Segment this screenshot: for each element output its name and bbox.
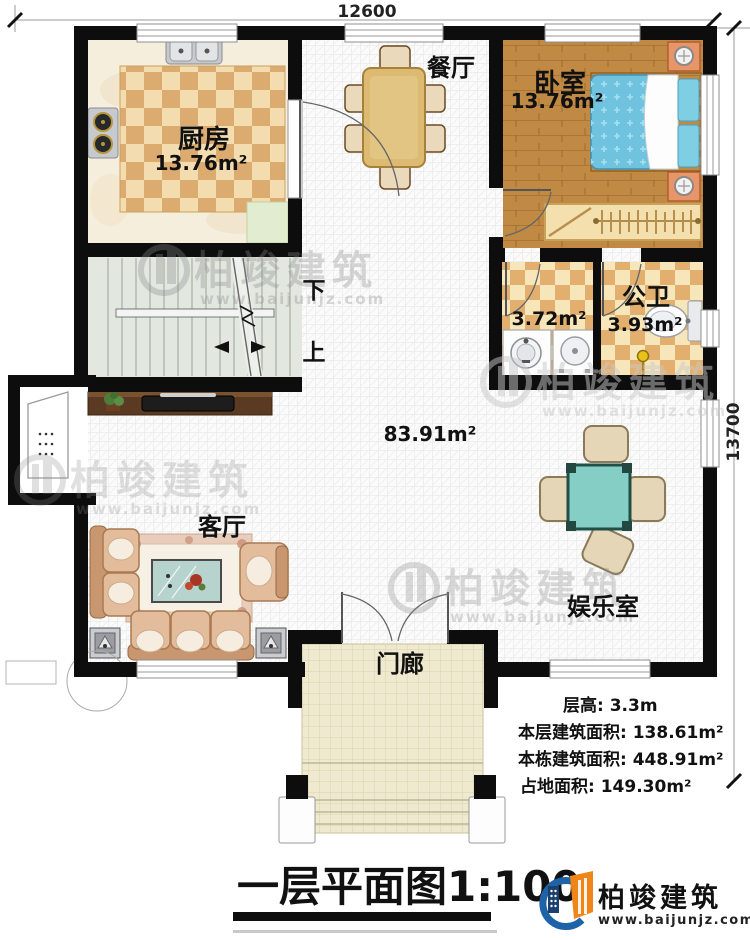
- floor-speaker: [256, 628, 286, 658]
- bed-pillow: [678, 79, 699, 121]
- info-footprint-area: 占地面积: 149.30m²: [520, 776, 691, 797]
- title-text: 一层平面图: [237, 862, 447, 911]
- brand-name: 柏竣建筑: [598, 882, 722, 914]
- svg-text:www.baijunjz.com: www.baijunjz.com: [542, 402, 727, 420]
- public-bath-label: 公卫: [622, 283, 670, 311]
- kitchen-area: 13.76m²: [155, 151, 248, 175]
- window: [137, 24, 237, 42]
- stair-down-label: 下: [303, 278, 326, 304]
- bedroom-area: 13.76m²: [511, 89, 604, 113]
- svg-text:柏竣建筑: 柏竣建筑: [194, 248, 378, 294]
- mahjong-table: [568, 465, 630, 529]
- game-chair: [627, 477, 665, 521]
- living-label: 客厅: [198, 513, 246, 541]
- bed-pillow: [678, 125, 699, 167]
- outdoor-pad: [6, 661, 56, 684]
- floor-plan-canvas: 12600 13700: [0, 0, 750, 940]
- svg-text:柏竣建筑: 柏竣建筑: [70, 458, 254, 504]
- bath-area: 3.72m²: [512, 308, 587, 330]
- sofa-left: [90, 526, 139, 618]
- title-underline-thin: [233, 930, 497, 933]
- window: [345, 24, 443, 42]
- info-floor-built-area: 本层建筑面积: 138.61m²: [518, 722, 723, 743]
- window: [701, 75, 719, 175]
- hall-area: 83.91m²: [384, 422, 477, 446]
- info-block: 层高: 3.3m 本层建筑面积: 138.61m² 本栋建筑面积: 448.91…: [518, 695, 723, 797]
- wardrobe: [545, 204, 701, 240]
- dimension-width: 12600: [337, 2, 396, 22]
- stair-up-label: 上: [303, 340, 326, 366]
- armchair-right: [240, 543, 288, 601]
- dining-label: 餐厅: [427, 54, 475, 82]
- living-room-set: [90, 526, 288, 660]
- public-bath-area: 3.93m²: [608, 314, 683, 336]
- coffee-table: [152, 560, 221, 602]
- title-block: 一层平面图1:100 柏竣建筑 www.baijunjz.com: [233, 862, 750, 933]
- porch-column: [474, 775, 496, 799]
- tv: [142, 396, 234, 411]
- info-total-built-area: 本栋建筑面积: 448.91m²: [518, 749, 723, 770]
- title-scale: 1:100: [447, 862, 581, 911]
- porch-column-base: [469, 797, 505, 843]
- game-chair: [584, 426, 628, 462]
- game-room-label: 娱乐室: [567, 593, 639, 621]
- floor-speaker: [90, 628, 120, 658]
- brand-website: www.baijunjz.com: [598, 913, 750, 928]
- tv-wall: [88, 391, 272, 415]
- porch-column-base: [279, 797, 315, 843]
- title-underline: [233, 912, 491, 921]
- window: [701, 310, 719, 347]
- porch-column: [286, 775, 308, 799]
- svg-text:www.baijunjz.com: www.baijunjz.com: [200, 290, 385, 308]
- window: [545, 24, 640, 42]
- window: [550, 660, 650, 678]
- window: [137, 660, 237, 678]
- bed-blanket: [644, 75, 678, 169]
- stove: [88, 108, 118, 158]
- page-title: 一层平面图1:100: [237, 862, 581, 911]
- kitchen-mat: [247, 202, 288, 243]
- sofa-bottom: [128, 611, 254, 660]
- porch-label: 门廊: [376, 650, 424, 678]
- info-floor-height: 层高: 3.3m: [563, 695, 658, 716]
- floor-plan-page: 12600 13700: [0, 0, 750, 940]
- svg-text:柏竣建筑: 柏竣建筑: [536, 360, 720, 406]
